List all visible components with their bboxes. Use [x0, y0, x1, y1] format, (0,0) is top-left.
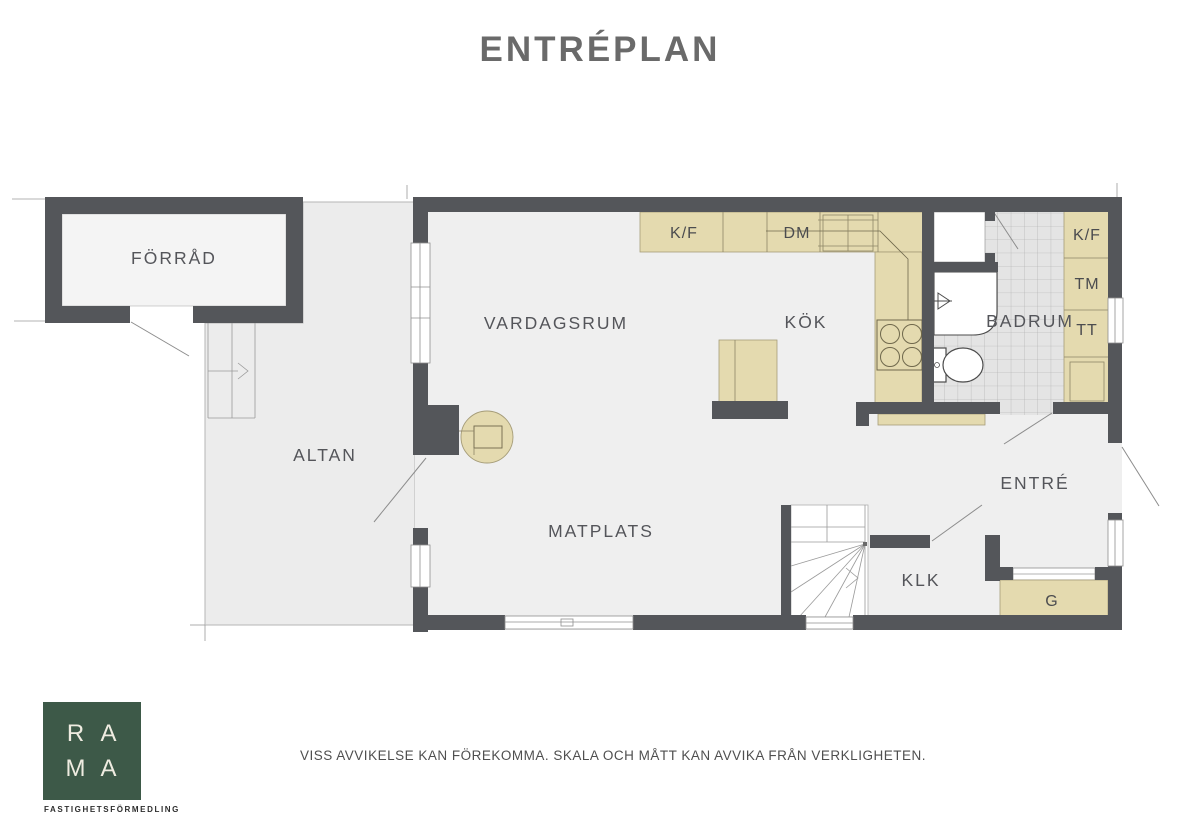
room-label-klk: KLK [901, 570, 940, 590]
hall-bench [878, 414, 985, 425]
label-garderob: G [1045, 593, 1058, 610]
room-label-vardagsrum: VARDAGSRUM [484, 313, 628, 333]
logo-letter-a1: A [92, 716, 125, 751]
label-kf-laundry: K/F [1073, 227, 1101, 244]
shower-cabin [934, 212, 985, 262]
entry-window [1108, 520, 1123, 566]
room-label-matplats: MATPLATS [548, 521, 654, 541]
floor-plan-drawing: FÖRRÅD VARDAGSRUM KÖK BADRUM ALTAN MATPL… [0, 0, 1200, 831]
room-label-forrad: FÖRRÅD [131, 248, 217, 268]
patio-slider [505, 616, 633, 629]
label-kf-kitchen: K/F [670, 225, 698, 242]
floorplan-page: ENTRÉPLAN [0, 0, 1200, 831]
logo-tagline: FASTIGHETSFÖRMEDLING [44, 805, 204, 814]
logo-letter-r: R [59, 716, 92, 751]
room-label-entre: ENTRÉ [1000, 473, 1069, 493]
matplats-window [411, 545, 430, 587]
label-tm: TM [1074, 276, 1099, 293]
stair-window [806, 617, 853, 629]
entry-door-swing [1122, 447, 1159, 506]
staircase [791, 505, 868, 617]
room-label-kok: KÖK [785, 312, 828, 332]
room-label-altan: ALTAN [293, 445, 357, 465]
room-label-badrum: BADRUM [986, 311, 1074, 331]
label-dm: DM [784, 225, 811, 242]
bathroom-window [1108, 298, 1123, 343]
disclaimer-text: VISS AVVIKELSE KAN FÖREKOMMA. SKALA OCH … [0, 748, 1200, 763]
label-tt: TT [1076, 322, 1098, 339]
toilet-icon [929, 348, 983, 382]
livingroom-window [411, 243, 430, 363]
forrad-door-swing [131, 322, 189, 356]
